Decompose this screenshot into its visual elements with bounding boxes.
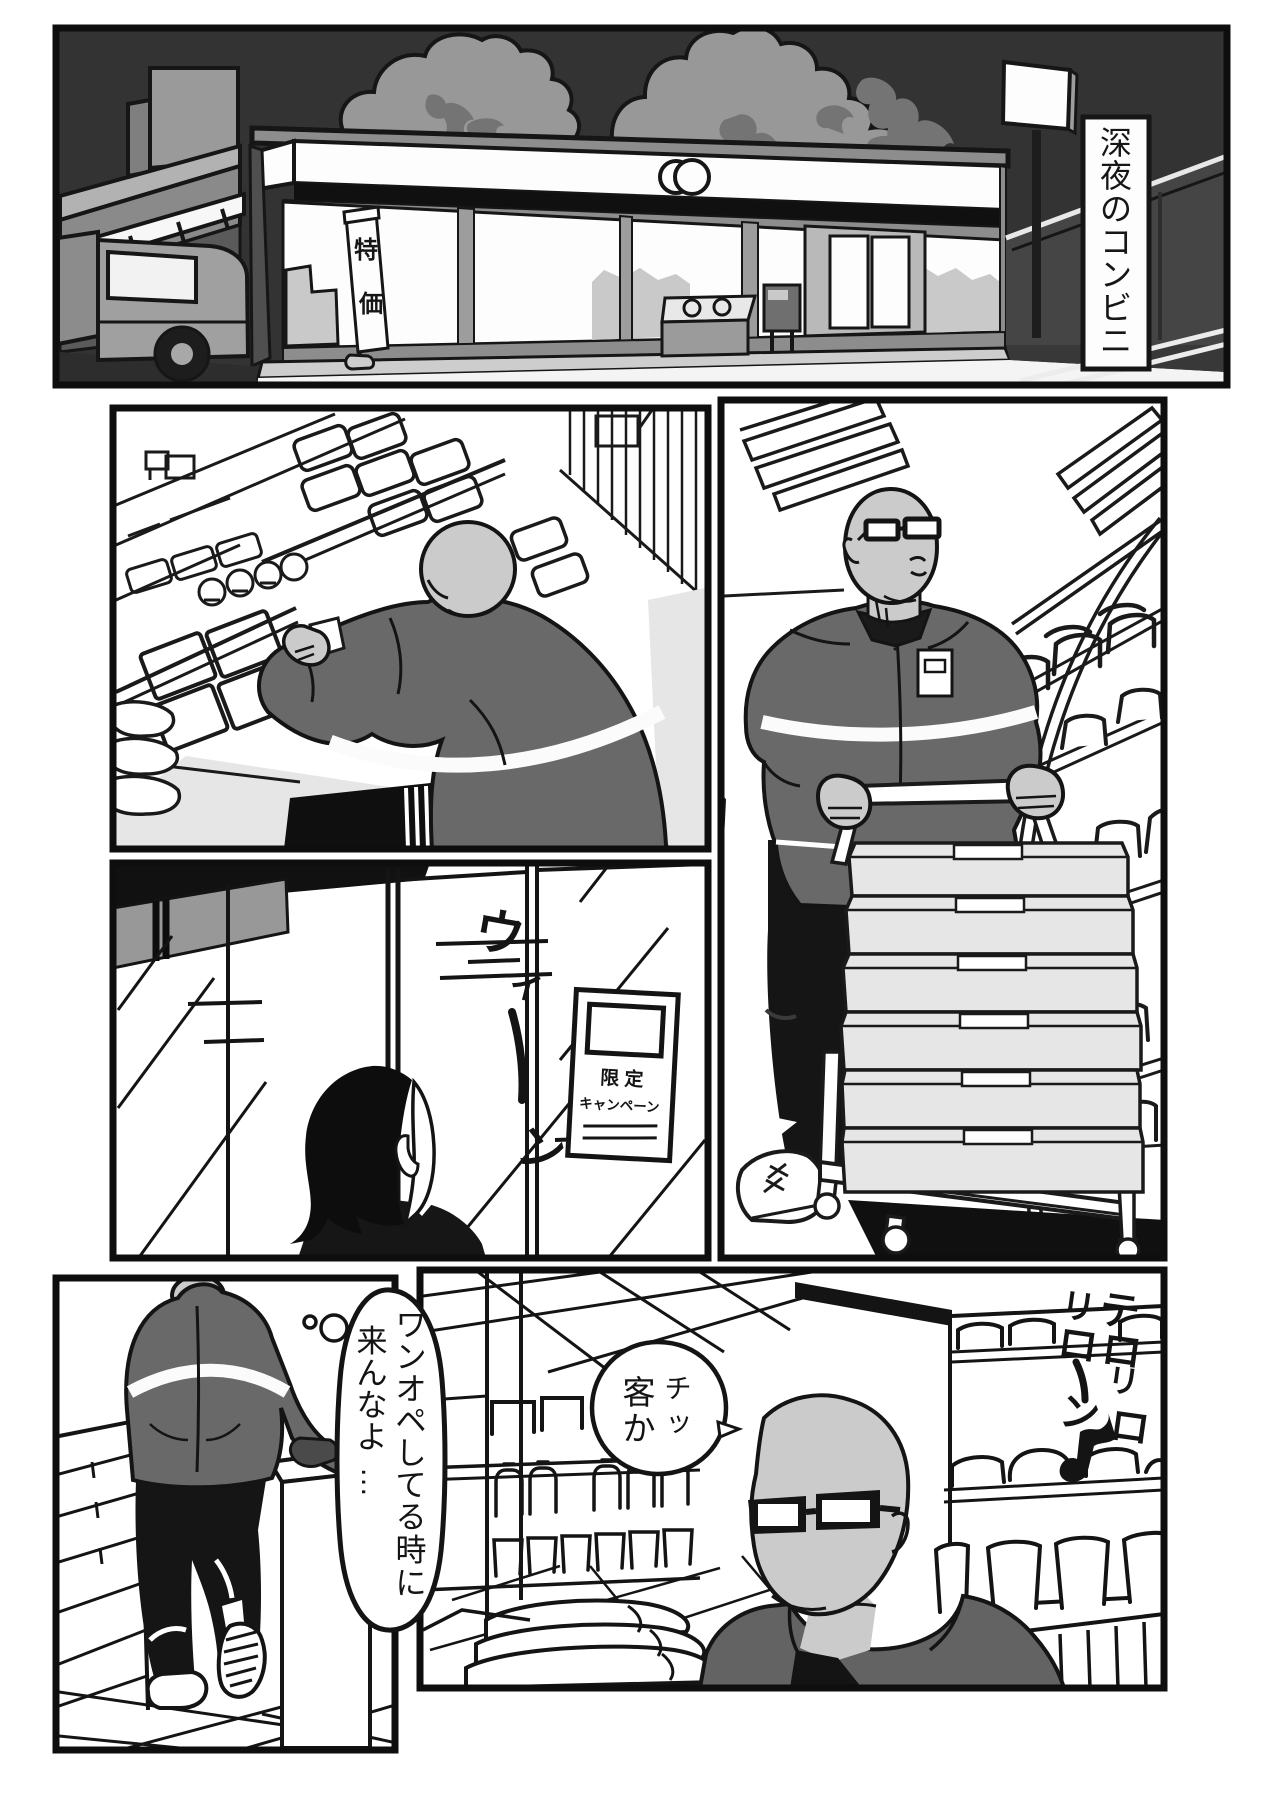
svg-text:ン: ン [1057,1389,1103,1438]
svg-text:ロ: ロ [1107,1403,1153,1452]
svg-text:リ: リ [1105,1361,1142,1401]
svg-text:深夜のコンビニ: 深夜のコンビニ [1100,125,1132,359]
svg-text:来んなよ: 来んなよ [357,1324,388,1455]
svg-text:ワンオペしてる時に: ワンオペしてる時に [396,1308,427,1601]
svg-text:特: 特 [354,237,378,264]
svg-text:価: 価 [358,291,383,318]
svg-text:…: … [355,1467,390,1498]
svg-text:限 定: 限 定 [600,1066,644,1091]
svg-text:ウ: ウ [470,902,529,966]
svg-text:客か: 客か [623,1374,656,1447]
